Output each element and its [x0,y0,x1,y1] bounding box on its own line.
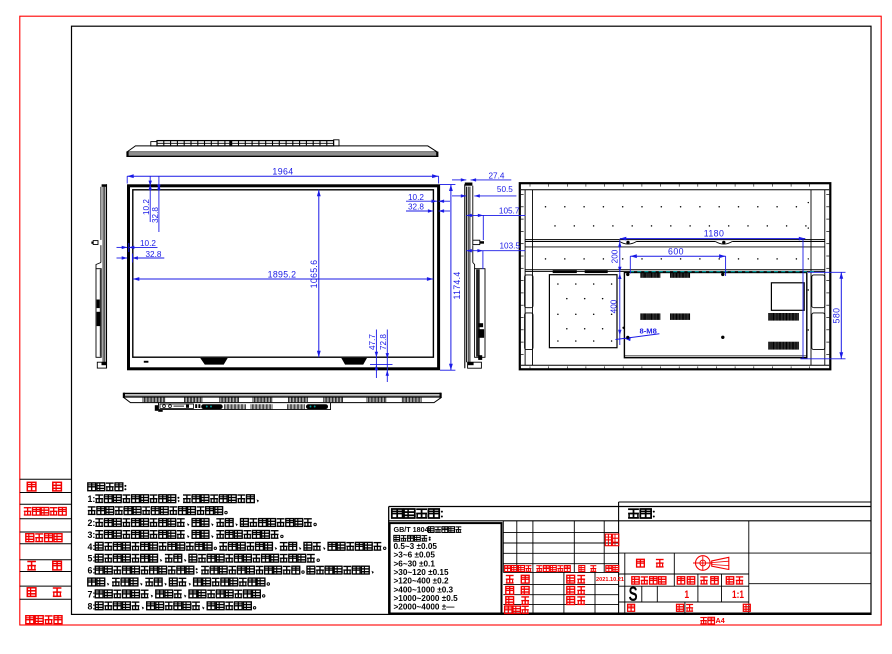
svg-text:1:: 1: [88,494,96,504]
svg-text:32.8: 32.8 [408,203,424,212]
svg-text:10.2: 10.2 [142,199,151,215]
svg-text:A4: A4 [716,616,725,625]
svg-text:S: S [629,582,638,606]
svg-text:1:1: 1:1 [732,589,744,601]
svg-text:1065.6: 1065.6 [309,260,319,289]
svg-text:7:: 7: [88,589,96,599]
svg-text:>2000~4000 ±—: >2000~4000 ±— [394,603,456,612]
svg-text:103.5: 103.5 [500,242,521,251]
svg-text:32.8: 32.8 [146,250,162,259]
svg-text:72.8: 72.8 [379,334,388,350]
svg-text:6:: 6: [88,566,96,576]
svg-text:2021.10.21: 2021.10.21 [596,577,624,583]
svg-text:GB/T 1804-: GB/T 1804- [394,525,432,534]
svg-text:>3~6 ±0.05: >3~6 ±0.05 [394,551,436,560]
svg-text:600: 600 [668,246,684,256]
svg-text:400: 400 [610,299,619,313]
svg-text:8:: 8: [88,601,96,611]
svg-text:1964: 1964 [272,167,293,177]
svg-text:1895.2: 1895.2 [268,269,297,279]
svg-text:27.4: 27.4 [489,171,505,180]
svg-text:10.2: 10.2 [408,193,424,202]
svg-text:1180: 1180 [704,228,725,238]
svg-text:580: 580 [832,308,842,324]
svg-text:47.7: 47.7 [368,334,377,350]
svg-text:5:: 5: [88,554,96,564]
svg-text:>400~1000 ±0.3: >400~1000 ±0.3 [394,585,454,594]
svg-text:50.5: 50.5 [497,185,513,194]
svg-text:105.7: 105.7 [499,206,520,215]
svg-text:4:: 4: [88,542,96,552]
svg-text:32.8: 32.8 [151,207,160,223]
svg-text:1: 1 [684,589,689,601]
svg-text:3:: 3: [88,530,96,540]
svg-text:2:: 2: [88,518,96,528]
svg-text:>30~120 ±0.15: >30~120 ±0.15 [394,568,449,577]
svg-text:10.2: 10.2 [140,239,156,248]
svg-text:1174.4: 1174.4 [452,271,462,299]
svg-text:200: 200 [611,249,620,263]
